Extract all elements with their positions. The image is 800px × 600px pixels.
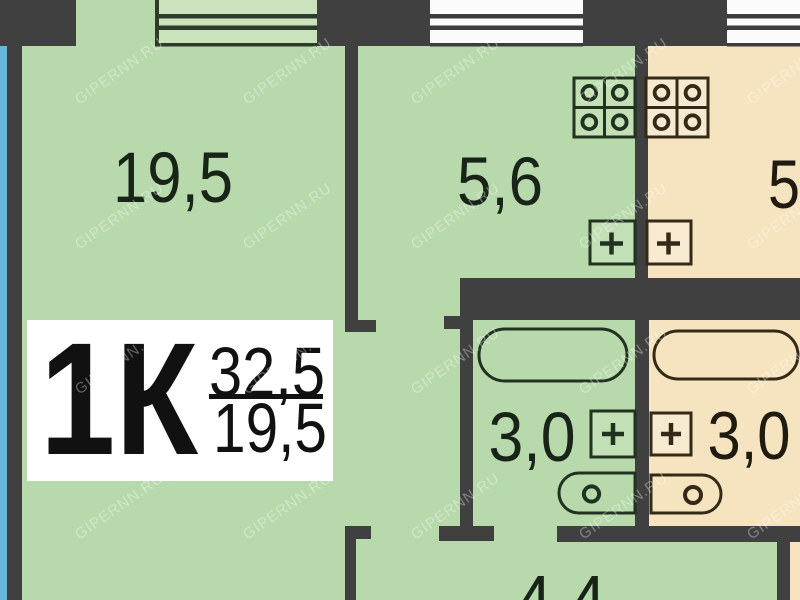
svg-text:3,0: 3,0 <box>708 398 791 474</box>
svg-text:19,5: 19,5 <box>213 389 327 467</box>
svg-text:1К: 1К <box>40 309 198 488</box>
svg-text:3,0: 3,0 <box>489 398 576 476</box>
svg-text:4,4: 4,4 <box>516 562 606 600</box>
